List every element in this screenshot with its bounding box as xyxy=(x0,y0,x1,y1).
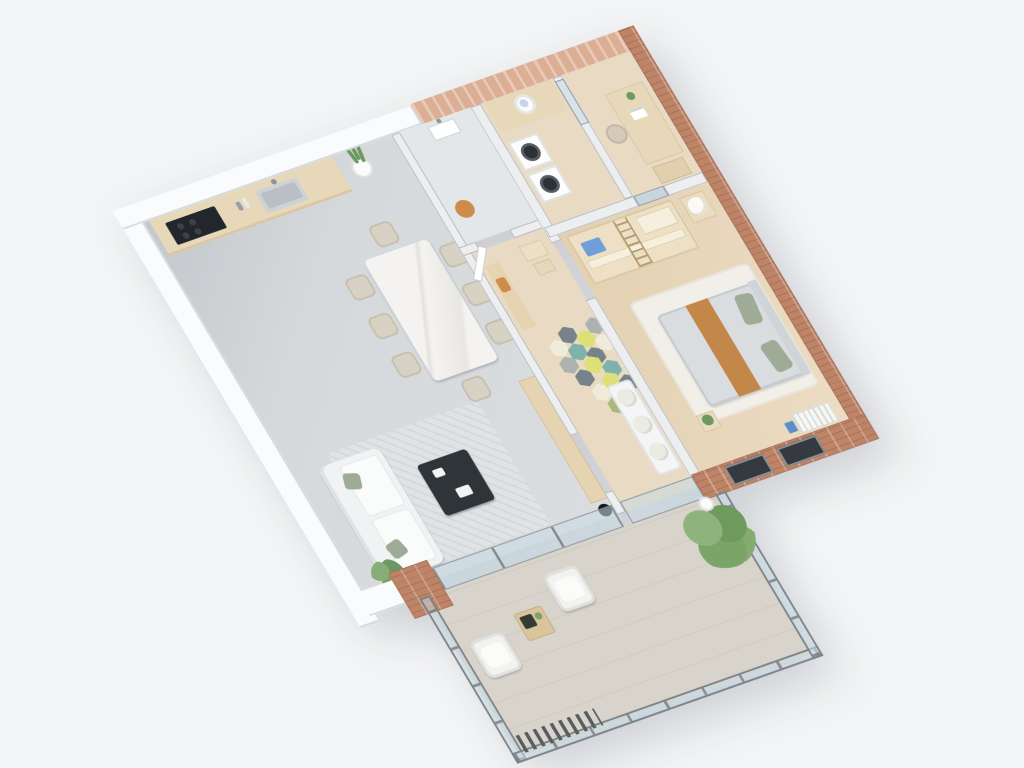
apartment-floor-plan xyxy=(125,34,983,768)
green-pillow xyxy=(342,473,363,490)
render-canvas xyxy=(0,0,1024,768)
